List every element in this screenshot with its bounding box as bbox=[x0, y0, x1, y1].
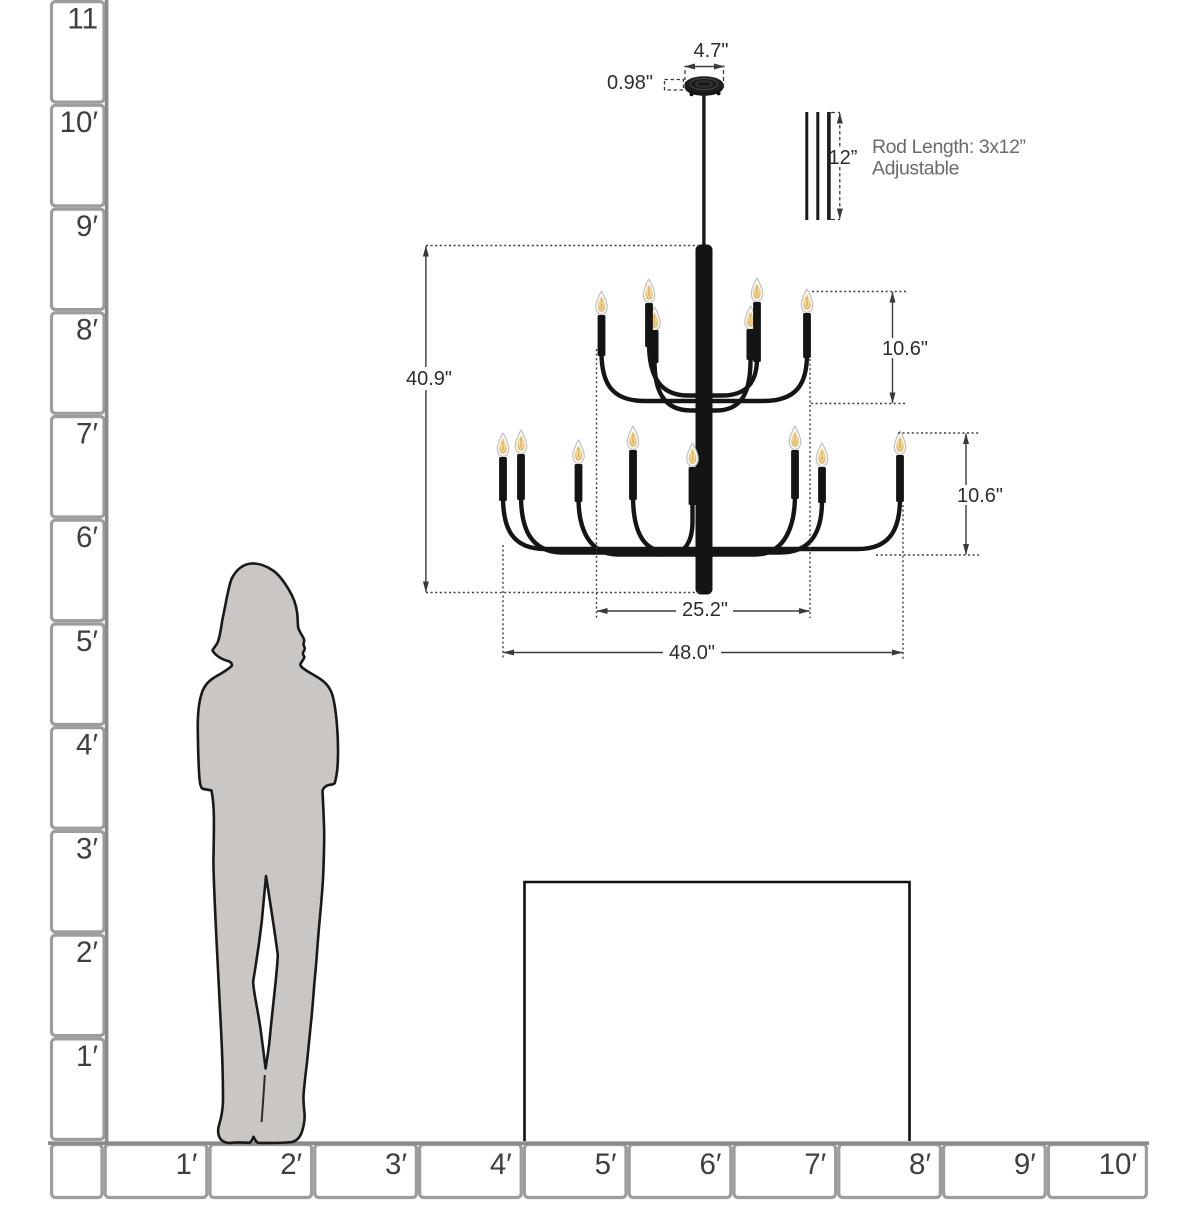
svg-text:10.6": 10.6" bbox=[882, 338, 928, 360]
svg-text:Rod Length: 3x12”: Rod Length: 3x12” bbox=[872, 136, 1026, 158]
svg-text:4′: 4′ bbox=[490, 1148, 512, 1181]
svg-text:4′: 4′ bbox=[76, 729, 98, 762]
svg-text:12”: 12” bbox=[829, 147, 858, 169]
svg-text:40.9": 40.9" bbox=[406, 368, 452, 390]
svg-text:0.98": 0.98" bbox=[607, 72, 653, 94]
svg-text:4.7": 4.7" bbox=[694, 40, 729, 62]
svg-text:3′: 3′ bbox=[76, 832, 98, 865]
svg-text:3′: 3′ bbox=[385, 1148, 407, 1181]
svg-text:Adjustable: Adjustable bbox=[872, 158, 959, 180]
svg-text:25.2": 25.2" bbox=[682, 599, 728, 621]
svg-text:10′: 10′ bbox=[1099, 1148, 1137, 1181]
svg-text:10.6": 10.6" bbox=[957, 485, 1003, 507]
svg-text:7′: 7′ bbox=[76, 417, 98, 450]
svg-text:2′: 2′ bbox=[76, 936, 98, 969]
svg-text:8′: 8′ bbox=[909, 1148, 931, 1181]
svg-text:1′: 1′ bbox=[76, 1040, 98, 1073]
svg-text:5′: 5′ bbox=[76, 625, 98, 658]
svg-text:2′: 2′ bbox=[280, 1148, 302, 1181]
svg-text:7′: 7′ bbox=[804, 1148, 826, 1181]
svg-text:11: 11 bbox=[67, 3, 98, 36]
svg-text:6′: 6′ bbox=[76, 521, 98, 554]
svg-text:8′: 8′ bbox=[76, 314, 98, 347]
svg-text:5′: 5′ bbox=[595, 1148, 617, 1181]
svg-text:48.0": 48.0" bbox=[669, 642, 715, 664]
svg-text:9′: 9′ bbox=[1014, 1148, 1036, 1181]
svg-text:1′: 1′ bbox=[175, 1148, 197, 1181]
svg-text:10′: 10′ bbox=[60, 106, 98, 139]
svg-text:6′: 6′ bbox=[699, 1148, 721, 1181]
svg-text:9′: 9′ bbox=[76, 210, 98, 243]
